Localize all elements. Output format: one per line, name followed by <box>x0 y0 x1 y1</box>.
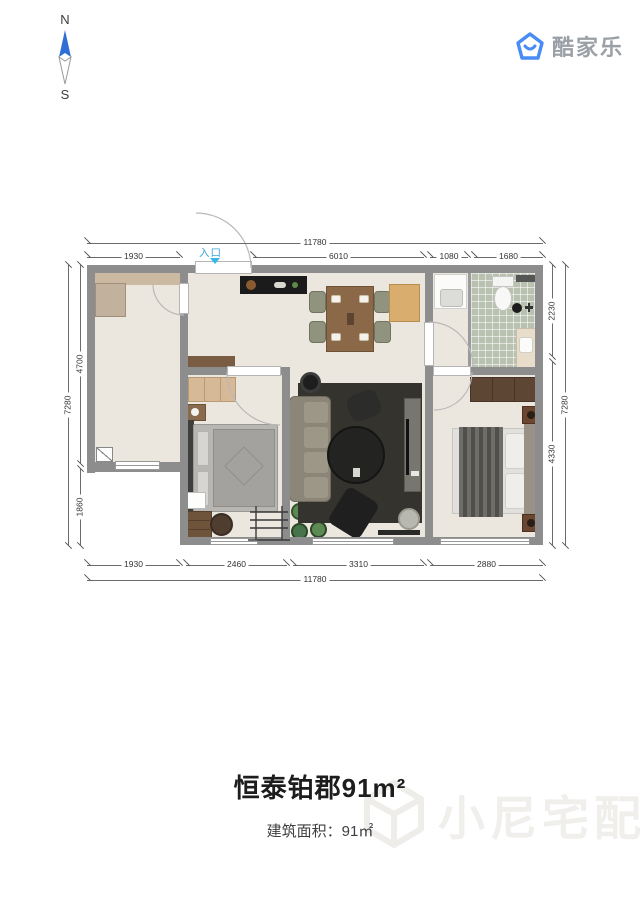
shower-pipe <box>528 303 530 312</box>
floor-lamp <box>300 372 321 393</box>
dining-chair <box>309 321 326 343</box>
kujiale-logo-text: 酷家乐 <box>552 30 624 62</box>
compass-north-label: N <box>50 12 80 27</box>
washing-machine <box>434 274 467 309</box>
wardrobe-divider <box>514 378 515 401</box>
wardrobe <box>188 377 236 402</box>
dim-top-seg: 1680 <box>474 257 543 258</box>
entrance-door <box>195 261 252 274</box>
exterior-notch <box>86 472 181 546</box>
dim-bottom-seg: 2880 <box>430 565 543 566</box>
wall-west <box>87 265 95 473</box>
dim-bottom-seg: 2460 <box>186 565 287 566</box>
wall-north <box>87 265 543 273</box>
compass-needle-icon <box>56 29 74 85</box>
shower-mixer-icon <box>525 306 533 309</box>
entrance-arrow-icon <box>210 258 220 264</box>
ottoman <box>398 508 420 530</box>
dim-left-seg: 4700 <box>80 265 81 463</box>
sofa-cushion <box>304 477 328 498</box>
dim-bottom-seg: 3310 <box>293 565 424 566</box>
entry-shelf <box>240 276 307 294</box>
dim-bottom-seg: 1930 <box>87 565 180 566</box>
wall-living-west <box>282 367 290 545</box>
dining-chair <box>374 321 391 343</box>
window <box>440 538 530 545</box>
dining-table <box>326 286 374 352</box>
wall-living-east <box>425 375 433 545</box>
compass-south-label: S <box>50 87 80 102</box>
toilet-bowl <box>494 286 512 311</box>
decor-vase <box>246 280 256 290</box>
sofa-cushion <box>304 452 328 473</box>
wardrobe <box>470 377 536 402</box>
dining-chair <box>309 291 326 313</box>
sofa-cushion <box>304 402 328 423</box>
table-lamp <box>191 408 199 416</box>
remote-item <box>353 468 360 477</box>
striped-duvet <box>459 427 503 517</box>
page-title: 恒泰铂郡91m² <box>0 768 640 805</box>
tv-screen <box>406 419 409 475</box>
pillow <box>197 431 209 466</box>
sofa-cushion <box>304 427 328 448</box>
coffee-table <box>327 426 385 484</box>
small-cabinet <box>96 447 113 462</box>
compass: N S <box>50 12 80 102</box>
floor-drain <box>512 303 522 313</box>
kujiale-logo: 酷家乐 <box>515 30 624 62</box>
duvet-pattern <box>224 446 264 486</box>
dim-top-total: 11780 <box>87 243 543 244</box>
side-cabinet <box>389 284 420 322</box>
wardrobe-divider <box>204 378 205 401</box>
table-lamp <box>527 519 535 527</box>
drawer-line <box>188 520 210 521</box>
door-storage-room <box>179 283 189 314</box>
wardrobe-divider <box>492 378 493 401</box>
place-setting <box>359 295 369 303</box>
wall-east <box>535 265 543 545</box>
door-bathroom <box>424 322 434 366</box>
dim-right-seg: 2230 <box>552 265 553 356</box>
wardrobe-divider <box>220 378 221 401</box>
pillow <box>505 433 525 469</box>
low-bench <box>378 530 420 535</box>
table-centerpiece <box>347 313 354 325</box>
kujiale-logo-icon <box>515 31 545 61</box>
towel-radiator <box>516 275 536 282</box>
door-right-bedroom <box>433 366 471 376</box>
dim-right-seg: 4330 <box>552 362 553 545</box>
dim-right-total: 7280 <box>565 265 566 545</box>
decor-item <box>274 282 286 288</box>
sofa <box>289 396 331 502</box>
window <box>312 538 394 545</box>
window <box>210 538 258 545</box>
door-left-bedroom <box>227 366 281 376</box>
dresser <box>185 511 212 538</box>
dim-top-seg: 1930 <box>87 257 180 258</box>
dim-left-seg: 1860 <box>80 469 81 545</box>
bed <box>452 428 530 514</box>
stool <box>210 513 233 536</box>
dim-top-seg: 1080 <box>430 257 468 258</box>
plant <box>310 521 327 538</box>
place-setting <box>359 333 369 341</box>
decor-item <box>411 471 419 476</box>
wall-bath-divider <box>468 273 471 367</box>
window <box>115 461 160 470</box>
storage-cabinet <box>95 283 126 317</box>
bathroom-vanity <box>516 328 536 368</box>
dim-bottom-total: 11780 <box>87 580 543 581</box>
pillow <box>505 473 525 509</box>
drawer-line <box>188 529 210 530</box>
area-label: 建筑面积：91㎡ <box>0 820 640 841</box>
decor-plant <box>292 282 298 288</box>
table-lamp <box>527 411 535 419</box>
washer-lid <box>440 289 463 307</box>
floorplan-page: N S 酷家乐 <box>0 0 640 905</box>
place-setting <box>331 295 341 303</box>
dim-top-seg: 6010 <box>253 257 424 258</box>
bed-headboard <box>524 424 535 518</box>
washbasin <box>519 337 533 353</box>
dim-left-total: 7280 <box>68 265 69 545</box>
place-setting <box>331 333 341 341</box>
duvet <box>213 429 275 507</box>
tv-cabinet <box>404 398 421 492</box>
